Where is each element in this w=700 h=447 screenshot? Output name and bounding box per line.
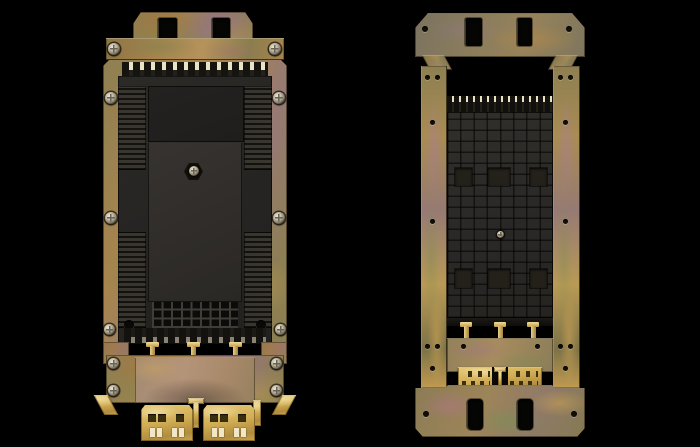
screw-phillips xyxy=(273,92,285,104)
rivet-hole xyxy=(430,120,435,125)
rivet-hole xyxy=(563,366,568,371)
top-mounting-plate xyxy=(415,13,585,57)
mounting-slot xyxy=(517,18,532,46)
screw-phillips xyxy=(108,358,119,369)
cassette-rear-waffle-back xyxy=(447,112,553,318)
comb-hole xyxy=(179,428,184,437)
rivet-hole xyxy=(435,344,440,349)
screw-phillips xyxy=(273,212,285,224)
screw-phillips xyxy=(104,324,115,335)
waffle-recess xyxy=(530,168,547,186)
rivet-hole xyxy=(430,219,435,224)
cable-comb-block xyxy=(203,405,255,441)
product-photo-canvas xyxy=(0,0,700,447)
mounting-slot xyxy=(465,18,482,46)
right-assembly-rear-view xyxy=(410,8,590,444)
waffle-recess xyxy=(488,269,510,288)
top-cross-bar xyxy=(106,38,284,60)
cable-comb-block xyxy=(141,405,193,441)
comb-slot xyxy=(176,414,184,422)
rivet-hole xyxy=(568,344,573,349)
rivet-hole xyxy=(461,344,466,349)
rivet-hole xyxy=(566,26,572,32)
cassette-comb-teeth-bottom xyxy=(124,328,266,343)
waffle-recess xyxy=(455,269,472,288)
rivet-hole xyxy=(425,344,430,349)
bottom-plate xyxy=(415,385,585,437)
rivet-hole xyxy=(558,75,563,80)
waffle-recess xyxy=(488,168,510,186)
cassette-rear-comb-teeth xyxy=(447,96,553,112)
waffle-recess xyxy=(530,269,547,288)
side-rail-left xyxy=(421,66,447,388)
cassette-recessed-panel xyxy=(148,86,244,142)
comb-hole xyxy=(150,428,155,437)
rivet-hole xyxy=(425,75,430,80)
rivet-hole xyxy=(435,75,440,80)
mounting-slot xyxy=(517,399,533,430)
comb-slot xyxy=(238,414,246,422)
comb-ibeam-stem xyxy=(193,402,199,428)
cassette-rear-center-screw xyxy=(497,231,504,238)
screw-phillips xyxy=(105,212,117,224)
mounting-slot xyxy=(467,399,483,430)
comb-hole xyxy=(234,428,239,437)
comb-hole xyxy=(241,428,246,437)
screw-phillips xyxy=(269,43,281,55)
rivet-hole xyxy=(430,366,435,371)
rivet-hole xyxy=(563,219,568,224)
comb-slot-row xyxy=(510,371,538,377)
cassette-rib-flange xyxy=(244,232,272,328)
left-assembly-front-view xyxy=(95,8,295,444)
rivet-hole xyxy=(422,26,428,32)
waffle-recess xyxy=(455,168,472,186)
cassette-rib-flange xyxy=(118,86,146,170)
splice-cassette xyxy=(118,62,272,344)
comb-hole xyxy=(219,428,224,437)
rivet-hole xyxy=(568,75,573,80)
side-rail-right xyxy=(553,66,580,388)
comb-slot xyxy=(148,414,156,422)
bottom-bracket-face xyxy=(135,357,255,403)
rivet-hole xyxy=(571,411,577,417)
rivet-hole xyxy=(535,344,540,349)
cassette-rear-opening xyxy=(447,86,553,338)
cassette-vent-grid xyxy=(152,302,238,328)
screw-phillips xyxy=(271,358,282,369)
comb-slot-row xyxy=(462,371,490,377)
cassette-rib-flange xyxy=(244,86,272,170)
rivet-hole xyxy=(563,120,568,125)
comb-hole xyxy=(172,428,177,437)
rivet-hole xyxy=(423,411,429,417)
cassette-center-screw xyxy=(189,166,199,176)
screw-phillips xyxy=(275,324,286,335)
comb-slot xyxy=(220,414,228,422)
screw-phillips xyxy=(271,385,282,396)
comb-slot xyxy=(158,414,166,422)
comb-hole xyxy=(157,428,162,437)
comb-hole xyxy=(212,428,217,437)
screw-phillips xyxy=(108,385,119,396)
screw-phillips xyxy=(108,43,120,55)
cassette-rib-flange xyxy=(118,232,146,328)
comb-slot xyxy=(210,414,218,422)
screw-phillips xyxy=(105,92,117,104)
rivet-hole xyxy=(558,344,563,349)
